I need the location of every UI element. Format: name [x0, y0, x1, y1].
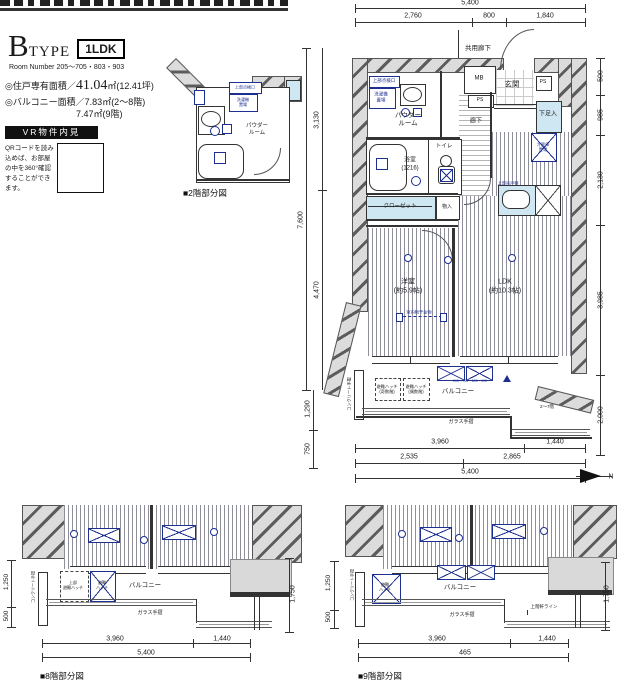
tick: [7, 560, 16, 561]
tick: [596, 375, 605, 376]
tick: [568, 653, 569, 662]
laundry-space-box: [369, 88, 396, 109]
glass-rail: [46, 599, 196, 600]
f8-hatch: [90, 571, 116, 602]
entrance-step: [494, 104, 536, 105]
wall-line: [366, 225, 458, 227]
dim-line: [306, 48, 307, 390]
tick: [355, 474, 356, 483]
ldk-window: [460, 356, 558, 364]
plan-tag: 1LDK: [77, 39, 124, 59]
qr-code-placeholder: [57, 143, 104, 193]
wall: [535, 386, 595, 414]
f9-dim-left-2: 500: [325, 612, 333, 623]
f8-dim-left-2: 500: [3, 611, 11, 622]
symbol: [444, 256, 452, 264]
hatch-marker: [437, 366, 465, 381]
corridor-common-label: 共用廊下: [465, 45, 491, 53]
laundry-bar-post: [440, 313, 447, 322]
kitchen-sink: [502, 190, 530, 209]
f9-marker: [492, 524, 526, 539]
glass-rail: [362, 605, 504, 606]
wall: [252, 505, 302, 563]
dim-bottom-total: 5,400: [461, 469, 479, 478]
dim-line: [358, 643, 568, 644]
symbol: [401, 108, 410, 117]
tick: [358, 639, 359, 648]
plan-title: BTYPE1LDK: [8, 28, 125, 64]
ldk-floor: [458, 196, 571, 356]
glass-rail: [365, 602, 501, 603]
dim-bottom-2: 1,440: [546, 439, 564, 448]
tick: [596, 455, 605, 456]
shoe-cabinet: [536, 101, 562, 133]
slab-band: [230, 592, 290, 597]
tick: [355, 444, 356, 453]
f2-caption: ■2階部分図: [183, 187, 227, 199]
symbol: [70, 530, 78, 538]
f2-drain: [214, 152, 226, 164]
closet: [366, 196, 436, 220]
tick: [596, 225, 605, 226]
line: [196, 179, 290, 181]
area1-value: 41.04: [76, 78, 108, 93]
tick: [596, 95, 605, 96]
tick: [250, 653, 251, 662]
area-line-1: ◎住戸専有面積／41.04㎡(12.41坪): [5, 78, 154, 94]
tick: [330, 610, 339, 611]
tick: [302, 390, 311, 391]
f8-concrete-rail-label: コンクリート手摺: [31, 571, 36, 603]
wall: [22, 505, 66, 559]
tick: [601, 630, 610, 631]
tick: [355, 459, 356, 468]
f8-balcony-label: バルコニー: [129, 582, 161, 590]
inspection-port-box: [369, 76, 400, 88]
area1-prefix: ◎住戸専有面積／: [5, 81, 76, 91]
f9-partition-label: コンクリート手摺: [350, 569, 355, 601]
floors-2-7-label: 2〜7階: [540, 404, 554, 410]
symbol: [210, 528, 218, 536]
dim-bottom-1: 3,960: [431, 439, 449, 448]
symbol: [540, 527, 548, 535]
f8-upper-hatch: [60, 571, 89, 602]
bedroom-window: [372, 356, 450, 364]
dim-right-2: 985: [598, 109, 607, 121]
glass-rail: [515, 432, 587, 433]
dim-line: [358, 657, 568, 658]
laundry-bar-post: [396, 313, 403, 322]
balcony-side-wall: [354, 370, 364, 420]
dim-line: [11, 560, 12, 627]
f2-washbasin: [201, 111, 221, 127]
concrete-rail-label: コンクリート手摺: [346, 377, 351, 411]
escape-hatch-even: [403, 378, 430, 401]
washbasin: [403, 87, 422, 102]
compass-needle: [580, 469, 601, 483]
dim-right-4: 3,985: [598, 291, 607, 309]
f9-dim-left-1: 1,250: [325, 575, 333, 591]
dim-top-3: 1,840: [536, 13, 554, 22]
glass-rail: [46, 605, 196, 606]
f8-dim-left-1: 1,250: [3, 574, 11, 590]
balcony-label: バルコニー: [442, 388, 474, 396]
dim-right-1: 500: [598, 70, 607, 82]
f9-caption: ■9階部分図: [358, 670, 402, 682]
f8-marker: [162, 525, 196, 540]
glass-rail: [512, 435, 590, 436]
balcony-edge: [196, 599, 197, 623]
dim-line: [313, 390, 314, 468]
dim-line: [355, 8, 585, 9]
f9-balcony-label: バルコニー: [444, 584, 476, 592]
wall-line: [366, 193, 458, 195]
mullion: [410, 356, 411, 363]
f8-window: [158, 566, 238, 574]
tick: [7, 627, 16, 628]
header-rule: [0, 8, 288, 11]
dim-right-3: 2,130: [598, 171, 607, 189]
tick: [42, 653, 43, 662]
dim-line: [600, 58, 601, 455]
glass-rail: [362, 599, 504, 600]
area-line-3: 7.47㎡(9階): [76, 107, 123, 120]
plan-type-letter: B: [8, 28, 29, 63]
wall: [345, 505, 385, 557]
tick: [568, 639, 569, 648]
floorplan-sheet: BTYPE1LDK Room Number 205〜705・803・903 ◎住…: [0, 0, 617, 688]
tick: [506, 18, 507, 27]
f2-symbol: [222, 124, 232, 134]
f2-laundry-box: [229, 94, 258, 112]
pillar-line: [580, 594, 581, 628]
f9-room-floor: [383, 505, 573, 569]
refrigerator-space: [531, 133, 557, 162]
symbol: [413, 108, 422, 117]
tick: [585, 18, 586, 27]
glass-rail: [196, 621, 272, 622]
tick: [472, 18, 473, 27]
compass-north-label: N: [608, 474, 613, 483]
glass-rail: [512, 429, 590, 430]
dim-line: [42, 657, 250, 658]
tick: [524, 444, 525, 453]
wall-line: [490, 92, 492, 178]
dim-line: [355, 478, 585, 479]
eave-line: [507, 624, 607, 625]
tick: [250, 639, 251, 648]
f2-fixture: [194, 90, 205, 105]
tick: [42, 639, 43, 648]
tick: [585, 444, 586, 453]
shower-symbol: [411, 176, 421, 186]
glass-rail-label: ガラス手摺: [449, 419, 474, 425]
meter-box: [464, 66, 496, 94]
vr-banner: VR物件内見: [5, 126, 98, 139]
tick: [585, 459, 586, 468]
pillar-line: [575, 594, 576, 628]
glass-rail: [365, 411, 507, 412]
mullion: [508, 356, 509, 363]
tick: [285, 632, 294, 633]
tick: [596, 58, 605, 59]
hatch-marker: [437, 565, 466, 580]
f8-marker: [88, 528, 120, 543]
clipped-header-text: [0, 0, 288, 6]
tick: [309, 468, 318, 469]
dim-line: [355, 22, 585, 23]
tick: [302, 48, 311, 49]
dim-line: [322, 48, 323, 390]
f2-inspection-box: [229, 82, 262, 94]
stove: [535, 185, 561, 216]
room-divider: [452, 228, 455, 357]
tick: [355, 18, 356, 27]
tick: [309, 430, 318, 431]
wall-line: [440, 71, 442, 137]
line: [458, 30, 459, 58]
room-divider: [470, 505, 473, 569]
wall-line: [366, 219, 458, 221]
tick: [318, 190, 327, 191]
drain: [376, 158, 388, 170]
dim-line: [42, 643, 250, 644]
laundry-bar: [398, 316, 442, 317]
glass-rail: [362, 414, 510, 415]
room-divider: [150, 505, 153, 569]
f9-glass-rail-label: ガラス手摺: [450, 612, 475, 618]
hatch-marker: [467, 565, 495, 580]
entrance-step: [494, 108, 536, 109]
tick: [285, 558, 294, 559]
symbol: [455, 534, 463, 542]
storage: [436, 196, 460, 220]
tick: [330, 628, 339, 629]
plan-type-word: TYPE: [29, 44, 71, 60]
dim-top-1: 2,760: [404, 13, 422, 22]
balcony-edge: [504, 599, 505, 623]
glass-rail: [504, 621, 610, 622]
dim-line: [334, 561, 335, 628]
tick: [193, 639, 194, 648]
dim-top-2: 800: [483, 13, 495, 22]
tick: [596, 135, 605, 136]
leader: [527, 610, 528, 615]
toilet-symbol: [440, 169, 453, 182]
ceiling-light-icon: [404, 254, 412, 262]
tick: [7, 607, 16, 608]
f8-glass-rail-label: ガラス手摺: [138, 610, 163, 616]
escape-hatch-odd: [375, 378, 401, 401]
dim-line: [605, 562, 606, 630]
symbol: [140, 536, 148, 544]
entrance-floor: [496, 70, 534, 106]
f9-marker: [420, 527, 452, 542]
dim-right-5: 2,000: [598, 406, 607, 424]
dim-line: [289, 558, 290, 632]
f8-caption: ■8階部分図: [40, 670, 84, 682]
entrance-door-arc: [500, 29, 534, 70]
glass-rail: [362, 408, 510, 409]
glass-rail: [196, 627, 272, 628]
pillar-line: [254, 596, 255, 630]
symbol: [398, 530, 406, 538]
area1-suffix: ㎡(12.41坪): [107, 81, 154, 91]
ps-shaft: [536, 76, 552, 91]
tick: [358, 653, 359, 662]
balcony-edge: [510, 437, 592, 439]
f9-eave-label: 上階軒ライン: [531, 604, 558, 610]
wall: [573, 505, 617, 559]
tick: [585, 4, 586, 13]
glass-rail: [504, 627, 610, 628]
wall: [571, 58, 587, 374]
tick: [510, 639, 511, 648]
tick: [463, 459, 464, 468]
closet-pole: [368, 206, 432, 207]
dim-bottom-3: 2,535: [400, 454, 418, 463]
dim-bottom-4: 2,865: [503, 454, 521, 463]
dim-line: [355, 463, 585, 464]
symbol: [503, 375, 511, 382]
room-number: Room Number 205〜705・803・903: [9, 62, 124, 72]
pillar-line: [259, 596, 260, 630]
balcony-edge: [356, 416, 512, 418]
vr-description: QRコードを読み込めば、お部屋の中を360°確認することができます。: [5, 144, 55, 194]
tick: [355, 4, 356, 13]
ceiling-light-icon: [508, 254, 516, 262]
tick: [601, 562, 610, 563]
dim-line: [355, 448, 585, 449]
bathtub: [369, 144, 407, 191]
hatch-marker: [466, 366, 493, 381]
f2-symbol: [210, 126, 220, 136]
tick: [330, 561, 339, 562]
glass-rail: [49, 602, 193, 603]
